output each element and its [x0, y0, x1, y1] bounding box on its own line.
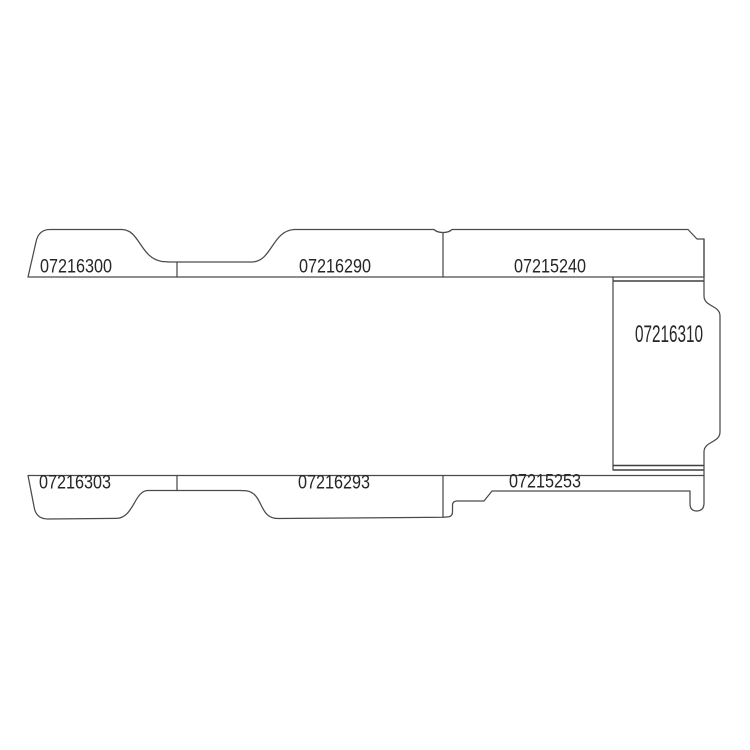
- part-label-upper-left: 07216300: [40, 257, 112, 278]
- van-panel-kit-diagram: 07216300 07216290 07215240 07216310 0721…: [0, 0, 750, 750]
- diagram-canvas: 07216300 07216290 07215240 07216310 0721…: [0, 0, 750, 750]
- part-label-lower-middle: 07216293: [298, 473, 370, 494]
- right-edge-outline: [704, 239, 720, 476]
- side-panel-bottom-rails: [613, 466, 704, 471]
- part-label-side-panel: 07216310: [635, 321, 703, 348]
- part-label-upper-right: 07215240: [514, 257, 586, 278]
- part-label-lower-left: 07216303: [39, 473, 111, 494]
- part-label-lower-right: 07215253: [509, 472, 581, 493]
- part-label-upper-middle: 07216290: [299, 257, 371, 278]
